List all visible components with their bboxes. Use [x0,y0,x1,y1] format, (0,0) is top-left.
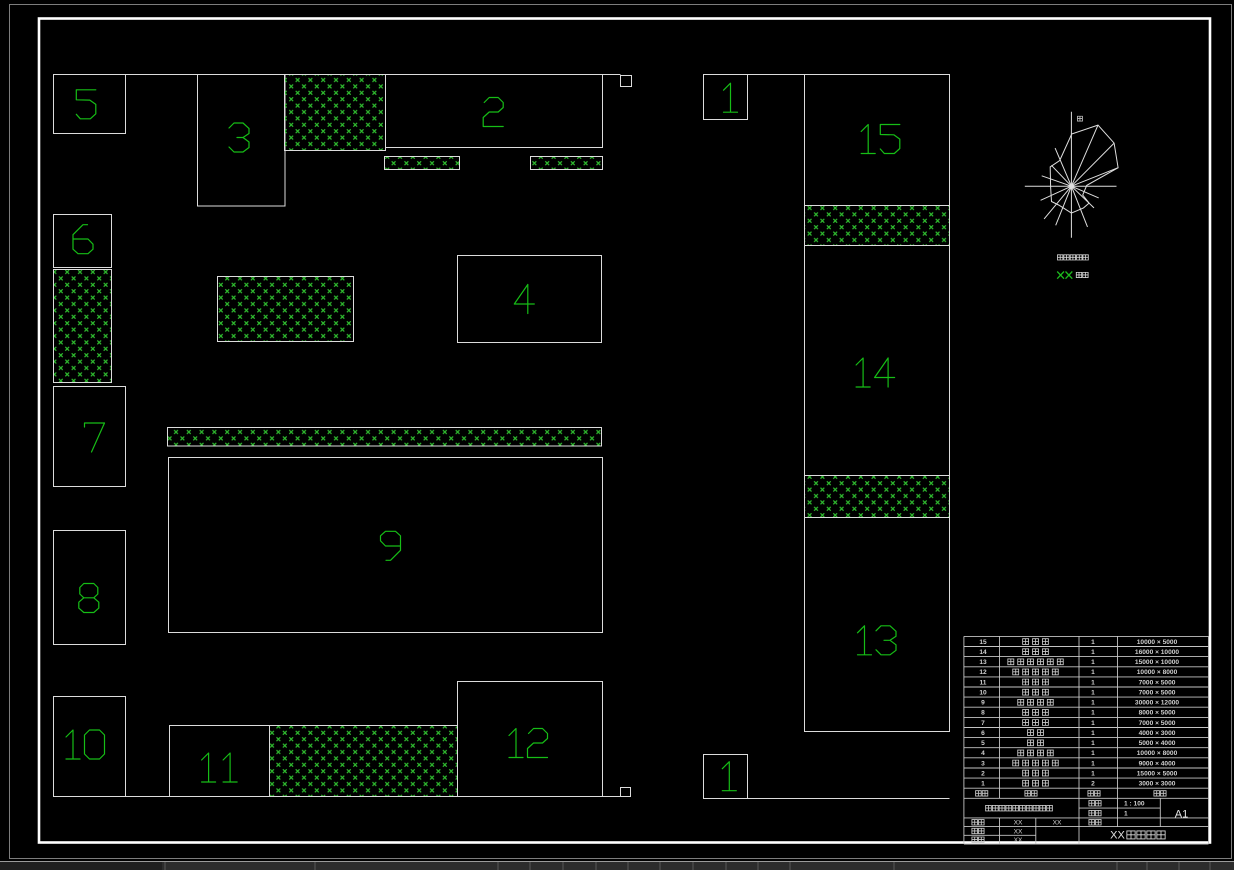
svg-text:1: 1 [1091,690,1095,697]
svg-text:1: 1 [1091,649,1095,656]
svg-text:1: 1 [1091,710,1095,717]
svg-text:10000 × 8000: 10000 × 8000 [1137,669,1178,676]
svg-text:7000 × 5000: 7000 × 5000 [1139,690,1176,697]
svg-text:8: 8 [981,710,985,717]
svg-text:30000 × 12000: 30000 × 12000 [1135,700,1180,707]
svg-text:9: 9 [981,700,985,707]
svg-text:1: 1 [1091,639,1095,646]
svg-text:15000 × 5000: 15000 × 5000 [1137,770,1178,777]
svg-text:7: 7 [981,720,985,727]
svg-text:9000 × 4000: 9000 × 4000 [1139,760,1176,767]
svg-text:1: 1 [1091,659,1095,666]
svg-text:1 : 100: 1 : 100 [1124,801,1145,808]
svg-text:XX: XX [1014,837,1023,844]
svg-text:4: 4 [981,750,985,757]
svg-text:1: 1 [1091,770,1095,777]
svg-text:1: 1 [1091,679,1095,686]
svg-text:15: 15 [979,639,987,646]
svg-text:2: 2 [981,770,985,777]
svg-text:15000 × 10000: 15000 × 10000 [1135,659,1180,666]
svg-text:1: 1 [1091,669,1095,676]
svg-text:XX: XX [1053,820,1062,827]
svg-text:1: 1 [1091,720,1095,727]
svg-text:5000 × 4000: 5000 × 4000 [1139,740,1176,747]
svg-text:10000 × 8000: 10000 × 8000 [1137,750,1178,757]
svg-text:XX: XX [1014,820,1023,827]
svg-text:13: 13 [979,659,987,666]
svg-text:12: 12 [979,669,987,676]
svg-text:A1: A1 [1175,809,1188,821]
svg-text:14: 14 [979,649,987,656]
svg-text:7000 × 5000: 7000 × 5000 [1139,679,1176,686]
svg-text:6: 6 [981,730,985,737]
svg-text:1: 1 [1091,750,1095,757]
svg-text:16000 × 10000: 16000 × 10000 [1135,649,1180,656]
svg-text:XX: XX [1014,828,1023,835]
svg-text:4000 × 3000: 4000 × 3000 [1139,730,1176,737]
svg-text:3000 × 3000: 3000 × 3000 [1139,781,1176,788]
svg-text:8000 × 5000: 8000 × 5000 [1139,710,1176,717]
svg-text:11: 11 [980,679,987,686]
svg-text:2: 2 [1091,781,1095,788]
svg-text:10: 10 [979,690,987,697]
svg-text:10000 × 5000: 10000 × 5000 [1137,639,1178,646]
svg-text:1: 1 [1091,730,1095,737]
svg-text:1: 1 [1091,740,1095,747]
svg-text:1: 1 [1124,810,1128,817]
svg-text:1: 1 [1091,700,1095,707]
svg-text:XX: XX [1110,830,1125,842]
svg-text:3: 3 [981,760,985,767]
svg-text:1: 1 [1091,760,1095,767]
svg-text:5: 5 [981,740,985,747]
svg-text:7000 × 5000: 7000 × 5000 [1139,720,1176,727]
svg-text:1: 1 [981,781,985,788]
